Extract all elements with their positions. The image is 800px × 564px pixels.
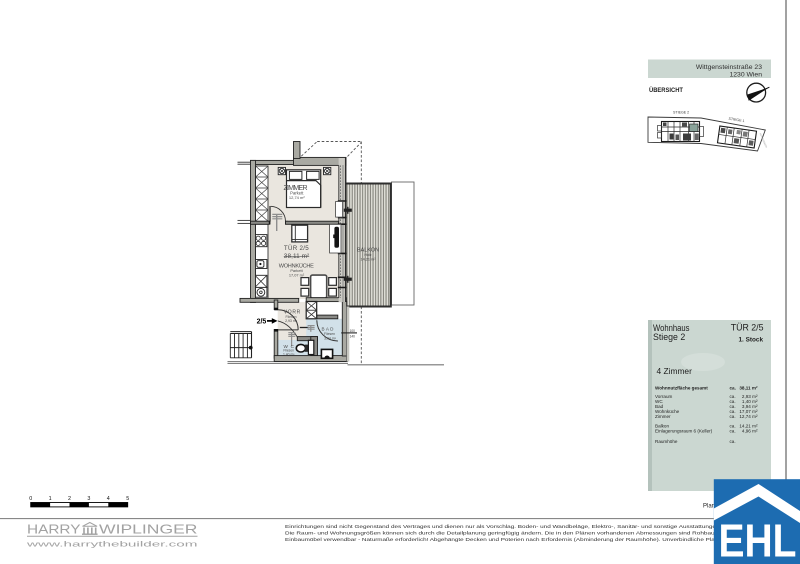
svg-text:TÜR 2/5: TÜR 2/5 [731, 323, 764, 333]
svg-text:2/5: 2/5 [257, 318, 267, 325]
svg-text:ca.: ca. [730, 439, 736, 444]
svg-text:STIEGE 2: STIEGE 2 [673, 111, 689, 115]
svg-text:2: 2 [68, 496, 71, 502]
svg-text:WIPLINGER: WIPLINGER [99, 523, 198, 537]
svg-text:38,11 m²: 38,11 m² [739, 386, 758, 391]
svg-text:Wohnnutzfläche gesamt: Wohnnutzfläche gesamt [655, 386, 708, 391]
svg-text:HARRY: HARRY [27, 523, 81, 537]
svg-text:EHL: EHL [719, 515, 797, 564]
svg-text:17,07 m²: 17,07 m² [289, 273, 305, 278]
svg-text:Einbaumöbel verwendbar - Natur: Einbaumöbel verwendbar - Naturmaße erfor… [285, 536, 785, 543]
svg-text:3: 3 [87, 496, 90, 502]
svg-text:12,74 m²: 12,74 m² [739, 414, 758, 419]
svg-text:Wittgensteinstraße 23: Wittgensteinstraße 23 [696, 64, 762, 71]
svg-text:5: 5 [126, 496, 129, 502]
svg-text:12,74 m²: 12,74 m² [289, 195, 305, 200]
svg-text:4,96 m²: 4,96 m² [742, 429, 758, 434]
svg-text:Raumhöhe: Raumhöhe [655, 439, 678, 444]
svg-text:Stiege 2: Stiege 2 [653, 332, 685, 342]
svg-text:TÜR 2/5: TÜR 2/5 [284, 245, 309, 252]
svg-text:3,94 m²: 3,94 m² [324, 337, 337, 341]
svg-text:www.harrythebuilder.com: www.harrythebuilder.com [25, 541, 198, 548]
svg-text:100: 100 [350, 329, 356, 333]
svg-text:BAD: BAD [322, 327, 335, 332]
svg-text:1: 1 [49, 496, 52, 502]
svg-text:1,40 m²: 1,40 m² [283, 352, 295, 356]
svg-text:Holz: Holz [364, 253, 371, 257]
svg-text:0: 0 [29, 496, 32, 502]
svg-text:38,11 m²: 38,11 m² [284, 253, 309, 260]
svg-text:ca.: ca. [730, 414, 736, 419]
svg-text:1230 Wien: 1230 Wien [730, 72, 763, 79]
svg-text:4 Zimmer: 4 Zimmer [657, 366, 693, 376]
svg-text:1. Stock: 1. Stock [738, 336, 763, 343]
svg-text:Einlagerungsraum 6 (Keller): Einlagerungsraum 6 (Keller) [655, 429, 713, 434]
svg-text:Zimmer: Zimmer [655, 414, 671, 419]
svg-text:ÜBERSICHT: ÜBERSICHT [649, 85, 684, 94]
svg-text:Fliesen: Fliesen [324, 332, 335, 336]
svg-text:ca.: ca. [730, 429, 736, 434]
svg-text:ca.: ca. [730, 386, 736, 391]
svg-text:14,21 m²: 14,21 m² [361, 258, 377, 262]
svg-text:140: 140 [350, 335, 356, 339]
svg-text:2,93 m²: 2,93 m² [285, 319, 298, 323]
svg-text:4: 4 [107, 496, 110, 502]
